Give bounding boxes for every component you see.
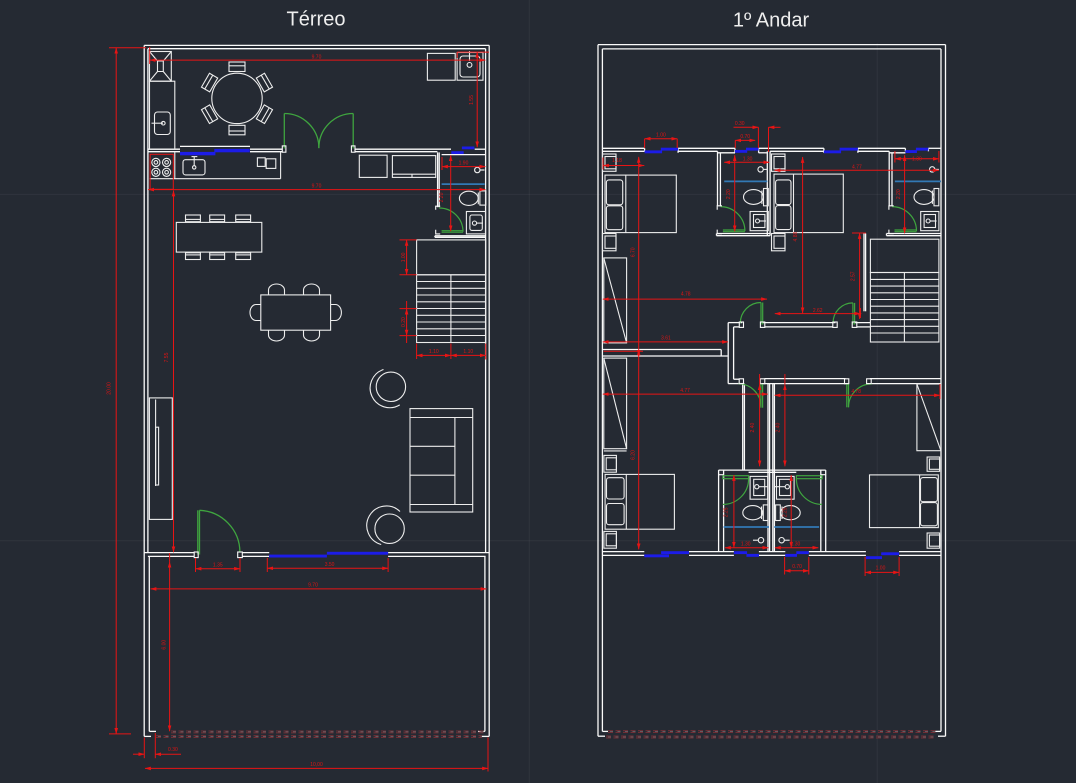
svg-text:0.20: 0.20 xyxy=(401,317,407,327)
svg-text:1.30: 1.30 xyxy=(743,156,753,162)
svg-text:1.30: 1.30 xyxy=(741,542,751,548)
svg-text:1.18: 1.18 xyxy=(612,158,622,164)
svg-text:20.00: 20.00 xyxy=(107,382,113,395)
svg-text:6.70: 6.70 xyxy=(630,247,636,257)
svg-text:3.50: 3.50 xyxy=(325,562,335,568)
svg-text:1.35: 1.35 xyxy=(213,563,223,569)
svg-text:4.78: 4.78 xyxy=(851,389,861,395)
svg-text:1.55: 1.55 xyxy=(469,95,475,105)
svg-text:2.20: 2.20 xyxy=(896,189,902,199)
svg-text:6.20: 6.20 xyxy=(630,450,636,460)
svg-text:2.62: 2.62 xyxy=(813,308,823,314)
svg-text:2.20: 2.20 xyxy=(439,192,445,202)
svg-text:4.78: 4.78 xyxy=(681,292,691,298)
svg-text:2.25: 2.25 xyxy=(724,507,730,517)
svg-text:Térreo: Térreo xyxy=(287,9,346,31)
svg-text:4.77: 4.77 xyxy=(680,388,690,394)
svg-text:1.10: 1.10 xyxy=(463,349,473,355)
svg-text:1.00: 1.00 xyxy=(876,565,886,571)
svg-text:9.70: 9.70 xyxy=(312,183,322,189)
svg-text:0.70: 0.70 xyxy=(792,564,802,570)
svg-text:1.00: 1.00 xyxy=(656,133,666,139)
svg-text:2.25: 2.25 xyxy=(783,507,789,517)
svg-text:7.55: 7.55 xyxy=(164,352,170,362)
svg-text:3.61: 3.61 xyxy=(661,336,671,342)
svg-text:4.88: 4.88 xyxy=(793,232,799,242)
svg-text:1.00: 1.00 xyxy=(401,252,407,262)
svg-text:1.30: 1.30 xyxy=(912,156,922,162)
svg-text:2.40: 2.40 xyxy=(775,423,781,433)
svg-text:4.77: 4.77 xyxy=(852,164,862,170)
svg-text:0.30: 0.30 xyxy=(735,121,745,127)
svg-text:1.10: 1.10 xyxy=(429,349,439,355)
svg-text:0.70: 0.70 xyxy=(740,134,750,140)
svg-text:2.20: 2.20 xyxy=(726,189,732,199)
svg-text:2.57: 2.57 xyxy=(851,271,857,281)
svg-text:0.30: 0.30 xyxy=(168,747,178,753)
svg-text:1.90: 1.90 xyxy=(459,160,469,166)
svg-text:9.70: 9.70 xyxy=(308,583,318,589)
svg-text:6.00: 6.00 xyxy=(161,640,167,650)
svg-text:9.70: 9.70 xyxy=(312,55,322,61)
svg-text:1.30: 1.30 xyxy=(791,542,801,548)
svg-text:10,00: 10,00 xyxy=(310,762,323,768)
svg-text:1º Andar: 1º Andar xyxy=(733,10,810,32)
svg-text:2.40: 2.40 xyxy=(750,423,756,433)
